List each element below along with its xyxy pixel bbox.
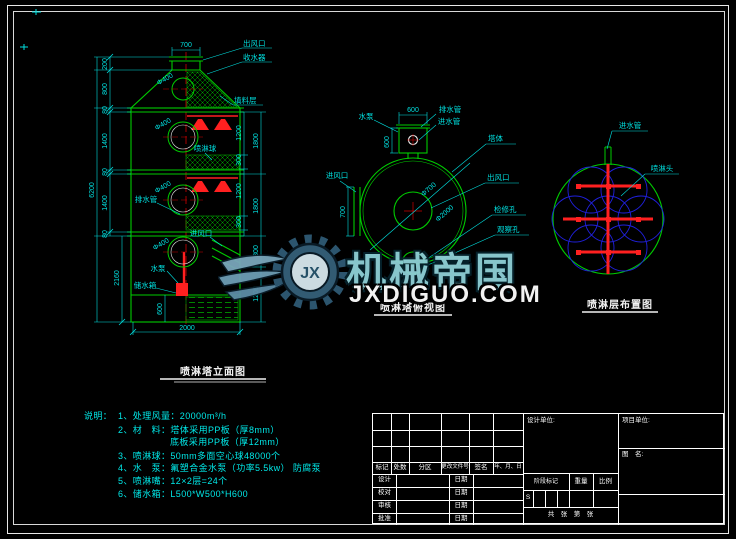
dim-1800: 1800 xyxy=(253,198,260,214)
note-line: 4、水 泵：氟塑合金水泵（功率5.5kw） 防腐泵 xyxy=(118,461,321,474)
title-block: 标记 处数 分区 更改文件号 签名 年、月、日 设计 日期 校对 日期 审核 日… xyxy=(372,413,724,524)
dim-1200: 1200 xyxy=(236,183,243,199)
watermark: JX 机械帝国 JXDIGUO.COM xyxy=(218,232,530,318)
dim-600: 600 xyxy=(384,136,391,148)
label-air-outlet: 出风口 xyxy=(487,172,510,182)
spray-layout-view: 进水管 喷淋头 xyxy=(552,120,679,274)
dim-1800: 1800 xyxy=(253,133,260,149)
dim-800: 800 xyxy=(102,83,109,95)
tb-col-count: 处数 xyxy=(391,465,409,472)
tb-date-label: 日期 xyxy=(449,516,473,523)
tb-row-design: 设计 xyxy=(373,477,396,484)
note-line: 6、储水箱：L500*W500*H600 xyxy=(118,487,248,500)
tb-row-approve: 批准 xyxy=(373,516,396,523)
dim-80: 80 xyxy=(102,168,109,176)
label-water-pump: 水泵 xyxy=(151,263,166,273)
tb-stage-mark: 阶段标记 xyxy=(523,479,569,485)
tb-col-sign: 签名 xyxy=(469,465,493,472)
tb-date-label: 日期 xyxy=(449,490,473,497)
tb-col-file: 更改文件号 xyxy=(441,465,469,471)
tb-col-zone: 分区 xyxy=(409,465,441,472)
gear-icon: JX xyxy=(277,239,343,305)
cad-drawing-canvas: 出风口 收水器 填料层 喷淋球 排水管 进风口 水泵 储水箱 700 200 8… xyxy=(0,0,736,539)
dim-6200-overall: 6200 xyxy=(89,182,96,198)
dim-1200: 1200 xyxy=(236,125,243,141)
top-view-texts: 水泵 600 600 排水管 进水管 塔体 出风口 检修孔 观察孔 进风口 70… xyxy=(326,104,520,234)
spray-inlet-stub xyxy=(605,147,611,165)
label-packing-layer: 填料层 xyxy=(234,95,257,105)
watermark-site: JXDIGUO.COM xyxy=(349,281,542,309)
dim-600: 600 xyxy=(407,107,419,114)
tb-project-unit: 项目单位: xyxy=(622,418,650,425)
tb-date-label: 日期 xyxy=(449,477,473,484)
dim-80: 80 xyxy=(102,106,109,114)
dim-d700: Φ700 xyxy=(420,181,438,198)
label-drain-pipe: 排水管 xyxy=(439,104,462,114)
tb-scale: 比例 xyxy=(593,479,618,486)
label-inlet-pipe: 进水管 xyxy=(619,120,642,130)
spray-layout-title: 喷淋层布置图 xyxy=(587,298,653,311)
tb-date-label: 日期 xyxy=(449,503,473,510)
gear-initials: JX xyxy=(300,265,320,282)
note-line: 底板采用PP板（厚12mm） xyxy=(170,435,285,448)
tb-row-check: 校对 xyxy=(373,490,396,497)
dim-300: 300 xyxy=(236,154,243,166)
watermark-logo: JX xyxy=(218,232,348,318)
label-tower-body: 塔体 xyxy=(488,133,503,143)
dim-300: 300 xyxy=(236,216,243,228)
tb-weight: 重量 xyxy=(569,479,593,486)
tb-design-unit: 设计单位: xyxy=(527,418,555,425)
notes-heading: 说明： xyxy=(84,409,112,422)
label-demister: 收水器 xyxy=(243,52,266,62)
tb-sheets: 共 张 第 张 xyxy=(523,512,618,519)
dim-1400: 1400 xyxy=(102,133,109,149)
label-air-inlet: 进风口 xyxy=(190,229,213,238)
tb-col-mark: 标记 xyxy=(373,465,391,472)
label-manhole: 检修孔 xyxy=(494,204,517,214)
label-water-tank: 储水箱 xyxy=(134,280,157,290)
dim-200: 200 xyxy=(102,58,109,70)
label-spray-nozzle: 喷淋头 xyxy=(651,163,674,173)
dim-manhole-d400: Φ400 xyxy=(156,72,175,87)
dim-d2000: Φ2000 xyxy=(435,204,456,223)
note-line: 5、喷淋嘴：12×2层=24个 xyxy=(118,474,228,487)
elevation-title: 喷淋塔立面图 xyxy=(180,365,246,378)
dim-1400: 1400 xyxy=(102,195,109,211)
dim-80: 80 xyxy=(102,230,109,238)
label-air-outlet: 出风口 xyxy=(243,38,266,48)
note-line: 1、处理风量：20000m³/h xyxy=(118,409,226,422)
dim-600-tank: 600 xyxy=(157,303,164,315)
dim-2160: 2160 xyxy=(114,270,121,286)
dim-2000: 2000 xyxy=(179,325,195,332)
tb-drawing-name: 图 名: xyxy=(622,452,643,459)
label-packing-ball: 喷淋球 xyxy=(194,143,217,153)
wing-icon xyxy=(218,255,288,300)
dim-700: 700 xyxy=(180,42,192,49)
label-inlet-pipe: 进水管 xyxy=(438,116,461,126)
stray-marks xyxy=(20,9,41,50)
dim-700-inlet: 700 xyxy=(340,206,347,218)
label-air-inlet: 进风口 xyxy=(326,171,349,180)
notes-block: 说明： 1、处理风量：20000m³/h 2、材 料：塔体采用PP板（厚8mm）… xyxy=(84,404,384,504)
tb-col-date: 年、月、日 xyxy=(493,465,523,471)
water-pump-symbol xyxy=(176,283,188,296)
label-pump: 水泵 xyxy=(359,111,374,121)
label-drain-pipe: 排水管 xyxy=(135,194,158,204)
tb-s-mark: S xyxy=(523,495,533,502)
tb-row-review: 审核 xyxy=(373,503,396,510)
